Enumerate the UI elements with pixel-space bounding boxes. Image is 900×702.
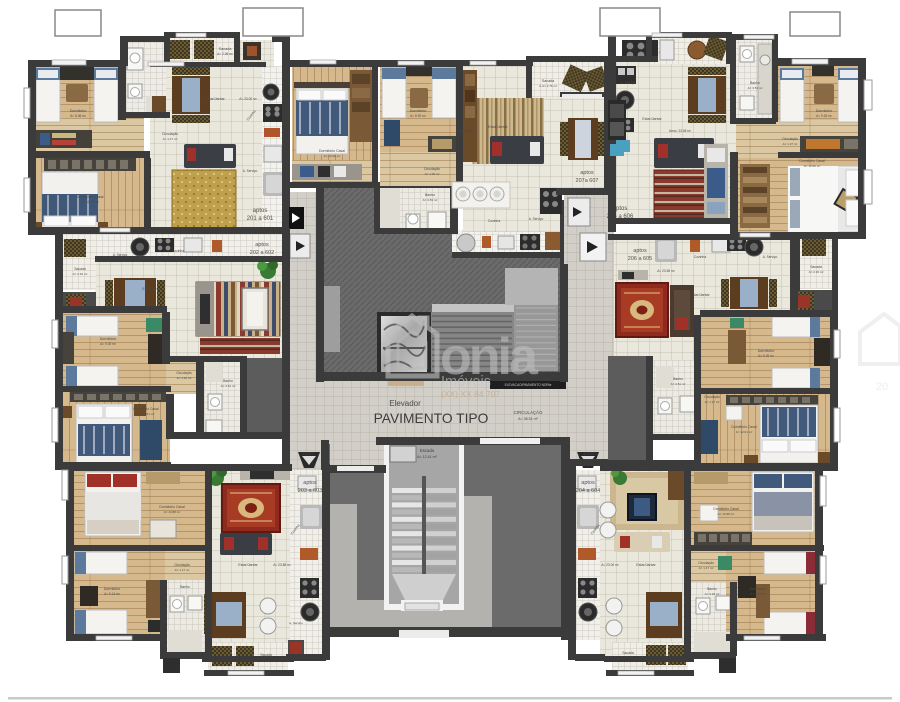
- svg-text:A= 1.17 m²: A= 1.17 m²: [705, 400, 720, 404]
- svg-text:A= 3.34 m²: A= 3.34 m²: [705, 592, 720, 596]
- svg-text:aptos: aptos: [253, 208, 268, 214]
- svg-text:A= 3.51 m²: A= 3.51 m²: [748, 86, 763, 90]
- svg-text:A= 1.37 m²: A= 1.37 m²: [783, 142, 798, 146]
- svg-text:A= 3.53 m²: A= 3.53 m²: [423, 198, 438, 202]
- svg-text:A= 8.92 m²: A= 8.92 m²: [410, 114, 426, 118]
- svg-text:aptos: aptos: [255, 242, 269, 248]
- svg-text:A= 38.51 m²: A= 38.51 m²: [518, 417, 538, 421]
- svg-text:Estar/Jantar: Estar/Jantar: [636, 563, 656, 567]
- svg-text:Cozinha: Cozinha: [172, 249, 185, 253]
- svg-text:aptos: aptos: [633, 248, 647, 254]
- svg-text:A= 2.19 m²: A= 2.19 m²: [73, 272, 88, 276]
- svg-text:Estar/Jantar: Estar/Jantar: [238, 563, 258, 567]
- svg-text:Dormitório: Dormitório: [104, 587, 121, 591]
- svg-text:aptos: aptos: [303, 480, 317, 486]
- svg-text:Dormitório: Dormitório: [410, 109, 427, 113]
- svg-text:Banho: Banho: [223, 379, 233, 383]
- svg-text:A= 1.17 m²: A= 1.17 m²: [175, 568, 190, 572]
- svg-text:Sacada: Sacada: [542, 79, 554, 83]
- svg-text:A= 9.26 m²: A= 9.26 m²: [816, 114, 832, 118]
- svg-text:Estar/Jantar: Estar/Jantar: [205, 97, 225, 101]
- svg-text:aptos: aptos: [581, 480, 595, 486]
- svg-text:A= 12.41 m²: A= 12.41 m²: [417, 455, 437, 459]
- svg-text:Elevador: Elevador: [389, 399, 421, 408]
- svg-text:Circulação: Circulação: [176, 371, 192, 375]
- svg-text:201 a 601: 201 a 601: [247, 216, 274, 222]
- svg-text:Dormitório Casal: Dormitório Casal: [319, 149, 345, 153]
- svg-text:Dormitório: Dormitório: [70, 109, 87, 113]
- svg-text:Dormitório Casal: Dormitório Casal: [731, 425, 756, 429]
- svg-text:20: 20: [876, 381, 888, 393]
- svg-text:Circulação: Circulação: [704, 395, 720, 399]
- svg-text:Dormitório: Dormitório: [100, 337, 117, 341]
- svg-text:Dormitório Casal: Dormitório Casal: [799, 159, 824, 163]
- svg-text:Dormitório Casal: Dormitório Casal: [133, 407, 158, 411]
- svg-text:Estar/Jantar: Estar/Jantar: [488, 125, 508, 129]
- svg-text:Cozinha: Cozinha: [488, 219, 501, 223]
- svg-text:A= 1.17 m²: A= 1.17 m²: [699, 566, 714, 570]
- svg-text:aptos: aptos: [580, 170, 594, 176]
- svg-text:206 a 605: 206 a 605: [628, 256, 652, 262]
- svg-text:A= 12.01 m²: A= 12.01 m²: [138, 412, 154, 416]
- svg-text:A= 1.12 m²: A= 1.12 m²: [177, 376, 192, 380]
- svg-text:A. Serviço: A. Serviço: [763, 255, 778, 259]
- svg-text:A= 8.36 m²: A= 8.36 m²: [70, 114, 86, 118]
- svg-text:A. Serviço: A. Serviço: [289, 621, 303, 625]
- svg-text:Banho: Banho: [425, 193, 435, 197]
- svg-text:A= 9.00 m²: A= 9.00 m²: [100, 342, 116, 346]
- svg-text:Circulação: Circulação: [162, 132, 178, 136]
- svg-text:A= 3.51 m²: A= 3.51 m²: [671, 382, 686, 386]
- svg-text:Banho: Banho: [673, 377, 683, 381]
- svg-text:Circulação: Circulação: [782, 137, 798, 141]
- svg-text:Banho: Banho: [750, 81, 760, 85]
- svg-text:C.A= 2.76 m²: C.A= 2.76 m²: [539, 84, 557, 88]
- svg-text:Area= 23.65 m²: Area= 23.65 m²: [669, 129, 691, 133]
- svg-text:A= 9.14 m²: A= 9.14 m²: [750, 592, 766, 596]
- svg-text:207a 607: 207a 607: [576, 178, 599, 184]
- svg-text:Banho: Banho: [180, 585, 190, 589]
- svg-text:PAVIMENTO TIPO: PAVIMENTO TIPO: [374, 411, 489, 426]
- svg-text:A= 3.51 m²: A= 3.51 m²: [221, 384, 236, 388]
- svg-text:A= 1.17 m²: A= 1.17 m²: [163, 137, 178, 141]
- svg-text:Circulação: Circulação: [424, 167, 440, 171]
- svg-text:A. Serviço: A. Serviço: [243, 169, 258, 173]
- svg-text:Circulação: Circulação: [698, 561, 714, 565]
- svg-text:Dormitório: Dormitório: [816, 109, 833, 113]
- svg-text:ACESSO: ACESSO: [301, 452, 315, 456]
- svg-text:ACESSO: ACESSO: [583, 452, 597, 456]
- svg-text:Sacada: Sacada: [810, 265, 822, 269]
- svg-text:A. Serviço: A. Serviço: [529, 217, 544, 221]
- svg-text:Sacada: Sacada: [74, 267, 86, 271]
- svg-text:A= 2.16 m²: A= 2.16 m²: [809, 270, 824, 274]
- svg-text:A= 23.65 m²: A= 23.65 m²: [657, 269, 674, 273]
- svg-text:A= 23.88 m²: A= 23.88 m²: [273, 563, 290, 567]
- svg-text:A. Serviço: A. Serviço: [621, 81, 636, 85]
- svg-text:Dormitório: Dormitório: [758, 349, 775, 353]
- svg-text:Cozinha: Cozinha: [694, 255, 707, 259]
- svg-text:A= 9.26 m²: A= 9.26 m²: [758, 354, 774, 358]
- svg-text:A= 9.14 m²: A= 9.14 m²: [104, 592, 120, 596]
- svg-text:203 a 603: 203 a 603: [298, 488, 322, 494]
- svg-text:CIRCULAÇÃO: CIRCULAÇÃO: [514, 410, 543, 415]
- svg-text:A= 23.00 m²: A= 23.00 m²: [239, 97, 256, 101]
- svg-text:A= 2.06 m²: A= 2.06 m²: [217, 52, 233, 56]
- svg-text:Imóveis: Imóveis: [441, 374, 491, 390]
- svg-text:A= 1.06 m²: A= 1.06 m²: [425, 172, 440, 176]
- svg-text:Sacada: Sacada: [622, 651, 634, 655]
- svg-text:204 a 604: 204 a 604: [576, 488, 600, 494]
- svg-text:Estar/Jantar: Estar/Jantar: [642, 117, 662, 121]
- svg-text:Circulação: Circulação: [174, 563, 190, 567]
- svg-text:Dormitório Casal: Dormitório Casal: [713, 507, 738, 511]
- svg-text:Dormitório Casal: Dormitório Casal: [159, 505, 184, 509]
- svg-text:A= 27.34 m²: A= 27.34 m²: [459, 129, 476, 133]
- svg-text:(XX) XX 84 707: (XX) XX 84 707: [441, 389, 500, 399]
- svg-text:Dormitório: Dormitório: [750, 587, 767, 591]
- svg-text:A= 23.00 m²: A= 23.00 m²: [601, 563, 618, 567]
- svg-text:A= 12.01 m²: A= 12.01 m²: [736, 430, 752, 434]
- svg-text:202 a 602: 202 a 602: [250, 250, 274, 256]
- svg-text:A= 12.68 m²: A= 12.68 m²: [718, 512, 734, 516]
- svg-text:Sacada: Sacada: [219, 47, 233, 51]
- svg-text:Banho: Banho: [707, 587, 717, 591]
- svg-text:A= 12.00 m²: A= 12.00 m²: [81, 200, 98, 204]
- svg-text:A= 13.88 m²: A= 13.88 m²: [164, 510, 180, 514]
- svg-text:Estar/Jantar: Estar/Jantar: [690, 293, 710, 297]
- svg-text:A= 12.00 m²: A= 12.00 m²: [324, 154, 340, 158]
- svg-text:A= 12.00 m²: A= 12.00 m²: [804, 164, 820, 168]
- svg-text:Escada: Escada: [420, 448, 435, 453]
- svg-text:Dormitório Casal: Dormitório Casal: [77, 195, 104, 199]
- svg-text:Estar/Jantar: Estar/Jantar: [142, 287, 162, 291]
